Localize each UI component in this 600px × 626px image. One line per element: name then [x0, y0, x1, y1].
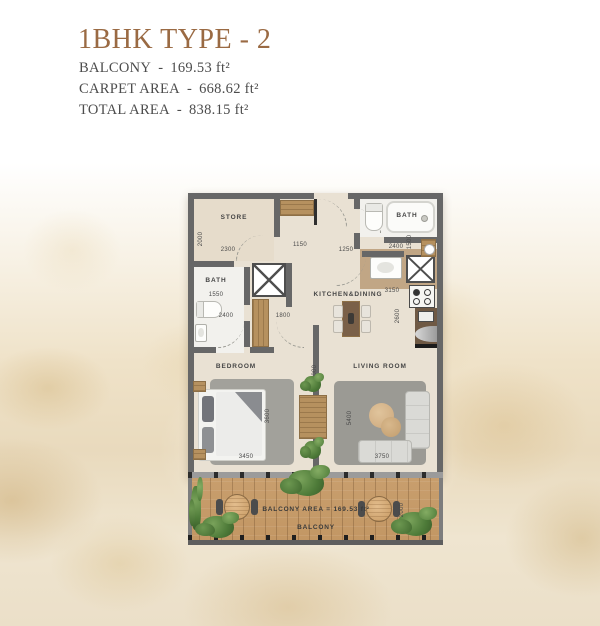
dining-chair — [333, 320, 343, 333]
stove-burner — [424, 289, 431, 296]
dining-table-decor — [348, 313, 354, 324]
dim-balcony-height: 2000 — [399, 495, 405, 525]
balcony-label: BALCONY — [276, 524, 356, 531]
dim-store-width: 2300 — [208, 247, 248, 253]
area-value: 668.62 ft² — [199, 81, 259, 97]
wardrobe-bottom-wall — [250, 347, 274, 353]
area-separator: - — [177, 102, 182, 118]
room-label-bedroom: BEDROOM — [204, 363, 268, 370]
foyer-cabinet — [280, 200, 314, 216]
nightstand — [193, 449, 206, 460]
dim-kitchen-height: 2600 — [395, 301, 401, 331]
shaft-x-left — [252, 263, 286, 297]
room-label-living: LIVING ROOM — [338, 363, 422, 370]
room-label-store: STORE — [204, 214, 264, 221]
tv-console — [299, 395, 327, 439]
dim-bath-right-height: 1500 — [407, 227, 413, 257]
stove-burner — [413, 289, 420, 296]
kitchen-counter-edge — [415, 344, 437, 348]
toilet-tank — [366, 204, 382, 212]
outer-wall-left — [188, 193, 194, 478]
kitchen-sink-icon — [418, 311, 434, 322]
balcony-area-text: BALCONY AREA = 169.53 ft² — [246, 506, 386, 513]
bed — [198, 389, 266, 461]
dining-chair — [361, 320, 371, 333]
room-label-bath-left: BATH — [196, 277, 236, 284]
entry-door-leaf — [314, 199, 317, 225]
balcony-rail-bottom — [188, 540, 443, 545]
shaft-x-right — [406, 255, 435, 283]
coffee-table — [381, 417, 401, 437]
plant-icon — [304, 376, 321, 392]
area-label: TOTAL AREA — [79, 102, 170, 118]
bath-left-wall-upper — [244, 267, 250, 305]
dim-hall: 1800 — [263, 313, 303, 319]
plant-icon — [288, 470, 324, 496]
plant-icon — [202, 516, 234, 538]
area-separator: - — [187, 81, 192, 97]
area-value: 838.15 ft² — [189, 102, 249, 118]
toilet-tank — [197, 302, 204, 317]
balcony-deck: BALCONY AREA = 169.53 ft² BALCONY 2000 — [188, 478, 443, 545]
stove-burner — [424, 298, 431, 305]
outer-wall-top-left — [188, 193, 314, 199]
balcony-area-line: BALCONY-169.53 ft² — [79, 60, 230, 77]
carpet-area-line: CARPET AREA-668.62 ft² — [79, 81, 259, 98]
shaft-x-icon — [254, 265, 284, 295]
bath-right-left-wall-a — [354, 193, 360, 209]
plant-icon — [304, 441, 321, 459]
dim-bath-left-width: 1550 — [196, 292, 236, 298]
sink-icon — [195, 324, 207, 342]
bath-left-wall-lower — [244, 321, 250, 347]
wardrobe — [252, 299, 269, 347]
dim-foyer: 1150 — [280, 242, 320, 248]
area-label: BALCONY — [79, 60, 151, 76]
shaft-x-icon — [408, 257, 433, 281]
hall-wall — [286, 263, 292, 307]
dim-living-width: 3750 — [362, 454, 402, 460]
dim-entry: 1250 — [326, 247, 366, 253]
area-value: 169.53 ft² — [170, 60, 230, 76]
floor-plan: STORE BATH BATH KITCHEN&DINING BEDROOM L… — [188, 193, 443, 545]
dining-chair — [361, 305, 371, 318]
dim-bedroom-width: 3450 — [226, 454, 266, 460]
outer-wall-top-right — [348, 193, 443, 199]
bedroom-top-wall — [188, 347, 216, 353]
total-area-line: TOTAL AREA-838.15 ft² — [79, 102, 249, 119]
page-title: 1BHK TYPE - 2 — [78, 24, 271, 56]
stove-burner — [413, 298, 420, 305]
dim-store-height: 2000 — [198, 224, 204, 254]
toilet-icon — [365, 203, 383, 231]
room-label-bath-right: BATH — [390, 212, 424, 219]
stove-icon — [409, 285, 435, 308]
dim-kitchen-width: 3150 — [372, 288, 412, 294]
store-bottom-wall — [188, 261, 234, 267]
dim-bath-left-height: 2400 — [206, 313, 246, 319]
area-separator: - — [158, 60, 163, 76]
vanity-sink-icon — [424, 244, 435, 255]
bed-pillow — [202, 396, 214, 422]
dim-living-height: 5400 — [347, 403, 353, 433]
double-sink-icon — [370, 257, 402, 279]
area-label: CARPET AREA — [79, 81, 180, 97]
outer-wall-right — [437, 193, 443, 478]
dim-bedroom-height: 3600 — [265, 401, 271, 431]
nightstand — [193, 381, 206, 392]
brochure-page: 1BHK TYPE - 2 BALCONY-169.53 ft² CARPET … — [0, 0, 600, 626]
dining-chair — [333, 305, 343, 318]
